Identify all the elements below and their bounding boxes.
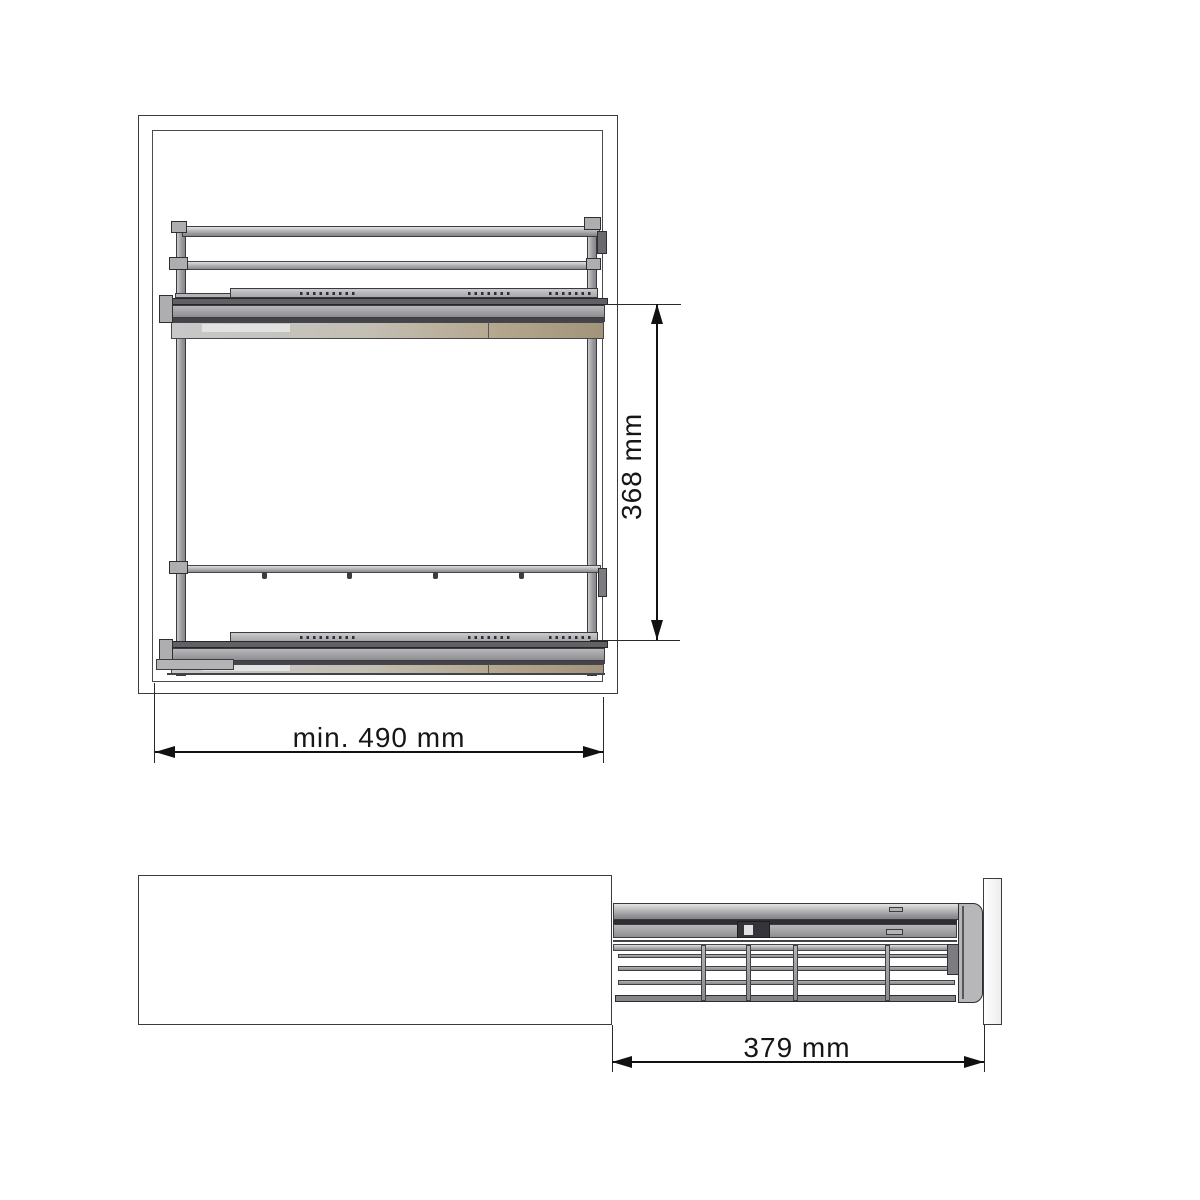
upper-perforation-right [549,292,591,295]
lower-perforation-right [549,636,591,639]
left-post-collar-lower [169,561,188,574]
dim-ext-label: 379 mm [743,1032,850,1064]
rail-hook-1 [262,572,267,579]
dim-ext-arrow-right [964,1056,984,1068]
dim-width-arrow-left [155,746,175,758]
rail-hook-2 [347,572,352,579]
basket-wire-row-2 [618,966,955,971]
runner-slide-band [613,924,957,938]
upper-slide-front-bracket [159,295,173,323]
dim-width-extension-right [603,697,604,763]
upper-basket-strip [230,288,598,298]
lower-slide-top-band [163,641,608,648]
basket-wire-row-3 [618,980,955,985]
runner-tab-lower [886,929,903,935]
basket-upright-1 [701,945,706,1001]
dim-height-label: 368 mm [616,424,648,520]
runner-top-band [613,903,963,920]
basket-wire-row-1 [618,954,955,958]
upper-slide-seam [488,322,489,339]
dim-height-line [656,304,658,640]
runner-groove [613,940,957,943]
basket-upright-3 [793,945,798,1001]
runner-clip [737,921,770,938]
lower-slide-seam [488,664,489,674]
lower-slide-foot [156,659,234,670]
dim-ext-arrow-left [612,1056,632,1068]
basket-front-frame-line [962,906,964,999]
top-rail-right-cap [584,217,601,230]
dim-height-arrow-down [651,620,663,640]
dim-width-label: min. 490 mm [293,722,466,754]
top-rail-left-cap [171,221,187,233]
runner-lower-band [613,944,955,951]
upper-slide-top-band [163,298,608,306]
basket-bottom-band [615,995,956,1002]
lower-perforation-mid [468,636,513,639]
rail-hook-3 [433,572,438,579]
lower-perforation-left [300,636,358,639]
upper-perforation-mid [468,292,513,295]
dim-height-extension-bottom [590,640,680,641]
dim-height-extension-top [600,304,681,305]
upper-perforation-left [300,292,358,295]
runner-tab-upper [889,907,903,912]
rail-hook-4 [519,572,524,579]
dim-height-arrow-up [651,304,663,324]
second-rail [179,261,601,270]
basket-upright-2 [746,945,751,1001]
runner-clip-notch [744,925,753,935]
left-post-collar-upper [169,257,188,270]
pullout-basket-technical-drawing: min. 490 mm 368 mm [0,0,1200,1200]
front-cabinet-inner [152,130,603,682]
dim-width-arrow-right [583,746,603,758]
basket-upright-4 [885,945,890,1001]
upper-slide-highlight [202,324,290,332]
right-post-collar-upper [586,258,601,270]
right-wall-bracket-top [597,231,607,254]
upper-slide-body [167,305,605,318]
lower-slide-bottom-line [167,673,605,675]
side-cabinet-box [138,875,612,1025]
right-wall-bracket-lower [598,568,607,597]
door-front-panel [983,878,1002,1025]
lower-rail [185,565,601,574]
top-rail [182,226,600,237]
